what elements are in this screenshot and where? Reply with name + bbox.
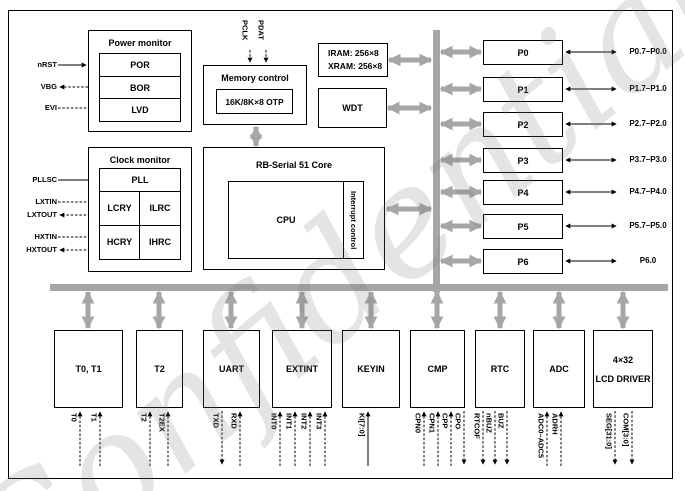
vertical-bus bbox=[433, 30, 440, 292]
int0-pin-label: INT0 bbox=[270, 413, 278, 429]
rtc-block: RTC bbox=[475, 330, 525, 408]
port-p6-block: P6 bbox=[483, 249, 563, 274]
port-p5-block: P5 bbox=[483, 214, 563, 239]
core-title: RB-Serial 51 Core bbox=[204, 160, 384, 170]
p6-pin-range: P6.0 bbox=[620, 256, 676, 265]
nbuz-pin-label: nBUZ bbox=[485, 413, 493, 433]
p2-pin-range: P2.7–P2.0 bbox=[620, 119, 676, 128]
memory-control-title: Memory control bbox=[204, 73, 306, 83]
t2-pin-label: T2 bbox=[140, 413, 148, 422]
wdt-block: WDT bbox=[318, 88, 387, 128]
keyin-block: KEYIN bbox=[342, 330, 400, 408]
interrupt-control-label: Interrupt control bbox=[349, 191, 358, 249]
p4-pin-range: P4.7–P4.0 bbox=[620, 187, 676, 196]
cpo-pin-label: CPO bbox=[454, 413, 462, 429]
port-pin-arrows bbox=[566, 52, 616, 261]
lcry-block: LCRY bbox=[100, 192, 140, 226]
pdat-pin-label: PDAT bbox=[257, 20, 265, 40]
cpn0-pin-label: CPN0 bbox=[414, 413, 422, 433]
int1-pin-label: INT1 bbox=[285, 413, 293, 429]
t1-pin-label: T1 bbox=[90, 413, 98, 422]
cpu-block: CPU bbox=[228, 181, 344, 259]
horizontal-bus bbox=[50, 284, 668, 291]
top-signal-lines bbox=[250, 50, 266, 62]
power-monitor-title: Power monitor bbox=[89, 38, 191, 48]
bor-block: BOR bbox=[100, 77, 180, 100]
hxtin-pin-label: HXTIN bbox=[17, 232, 57, 241]
t2ex-pin-label: T2EX bbox=[158, 413, 166, 432]
com-pins-label: COM[3:0] bbox=[622, 413, 630, 446]
cpp-pin-label: CPP bbox=[441, 413, 449, 428]
hxtout-pin-label: HXTOUT bbox=[17, 245, 57, 254]
lvd-block: LVD bbox=[100, 99, 180, 121]
adc-pins-label: ADC0–ADC5 bbox=[537, 413, 545, 458]
uart-block: UART bbox=[203, 330, 260, 408]
port-p3-block: P3 bbox=[483, 148, 563, 173]
pllsc-pin-label: PLLSC bbox=[17, 175, 57, 184]
lxtin-pin-label: LXTIN bbox=[17, 197, 57, 206]
lcd-driver-block: 4×32 LCD DRIVER bbox=[593, 330, 653, 408]
int3-pin-label: INT3 bbox=[315, 413, 323, 429]
timer01-block: T0, T1 bbox=[54, 330, 123, 408]
por-block: POR bbox=[100, 54, 180, 77]
p3-pin-range: P3.7–P3.0 bbox=[620, 155, 676, 164]
interrupt-control-block: Interrupt control bbox=[343, 181, 364, 259]
clock-monitor-cells: LCRY ILRC HCRY IHRC bbox=[99, 191, 181, 260]
t0-pin-label: T0 bbox=[70, 413, 78, 422]
port-p1-block: P1 bbox=[483, 77, 563, 102]
otp-block: 16K/8K×8 OTP bbox=[216, 89, 293, 114]
memory-control-block: Memory control 16K/8K×8 OTP bbox=[203, 65, 307, 125]
extint-block: EXTINT bbox=[272, 330, 332, 408]
p0-pin-range: P0.7–P0.0 bbox=[620, 47, 676, 56]
ki-pin-label: KI[7:0] bbox=[358, 413, 366, 436]
lxtout-pin-label: LXTOUT bbox=[17, 210, 57, 219]
lcd-driver-label: LCD DRIVER bbox=[595, 374, 650, 384]
txd-pin-label: TXD bbox=[212, 413, 220, 428]
lcd-size-label: 4×32 bbox=[613, 355, 633, 365]
p1-pin-range: P1.7–P1.0 bbox=[620, 84, 676, 93]
iram-label: IRAM: 256×8 bbox=[328, 47, 379, 60]
port-p2-block: P2 bbox=[483, 112, 563, 137]
ilrc-block: ILRC bbox=[140, 192, 180, 226]
clock-monitor-title: Clock monitor bbox=[89, 155, 191, 165]
rtcof-pin-label: RTCOF bbox=[473, 413, 481, 439]
pll-block: PLL bbox=[99, 168, 181, 192]
seg-pins-label: SEG[31:0] bbox=[605, 413, 613, 449]
nrst-pin-label: nRST bbox=[17, 60, 57, 69]
timer2-block: T2 bbox=[136, 330, 183, 408]
core-block: RB-Serial 51 Core CPU Interrupt control bbox=[203, 147, 385, 270]
port-p0-block: P0 bbox=[483, 40, 563, 65]
evi-pin-label: EVI bbox=[17, 103, 57, 112]
ram-block: IRAM: 256×8 XRAM: 256×8 bbox=[318, 43, 388, 77]
cpn1-pin-label: CPN1 bbox=[428, 413, 436, 433]
ihrc-block: IHRC bbox=[140, 226, 180, 260]
hcry-block: HCRY bbox=[100, 226, 140, 260]
block-diagram: Power monitor POR BOR LVD Clock monitor … bbox=[0, 0, 685, 491]
rxd-pin-label: RXD bbox=[230, 413, 238, 429]
cmp-block: CMP bbox=[410, 330, 465, 408]
adc-block: ADC bbox=[533, 330, 585, 408]
adrh-pin-label: ADRH bbox=[551, 413, 559, 435]
xram-label: XRAM: 256×8 bbox=[328, 60, 382, 73]
power-monitor-cells: POR BOR LVD bbox=[99, 53, 181, 122]
p5-pin-range: P5.7–P5.0 bbox=[620, 221, 676, 230]
int2-pin-label: INT2 bbox=[300, 413, 308, 429]
buz-pin-label: BUZ bbox=[497, 413, 505, 428]
port-p4-block: P4 bbox=[483, 180, 563, 205]
vbg-pin-label: VBG bbox=[17, 82, 57, 91]
pclk-pin-label: PCLK bbox=[241, 20, 249, 40]
